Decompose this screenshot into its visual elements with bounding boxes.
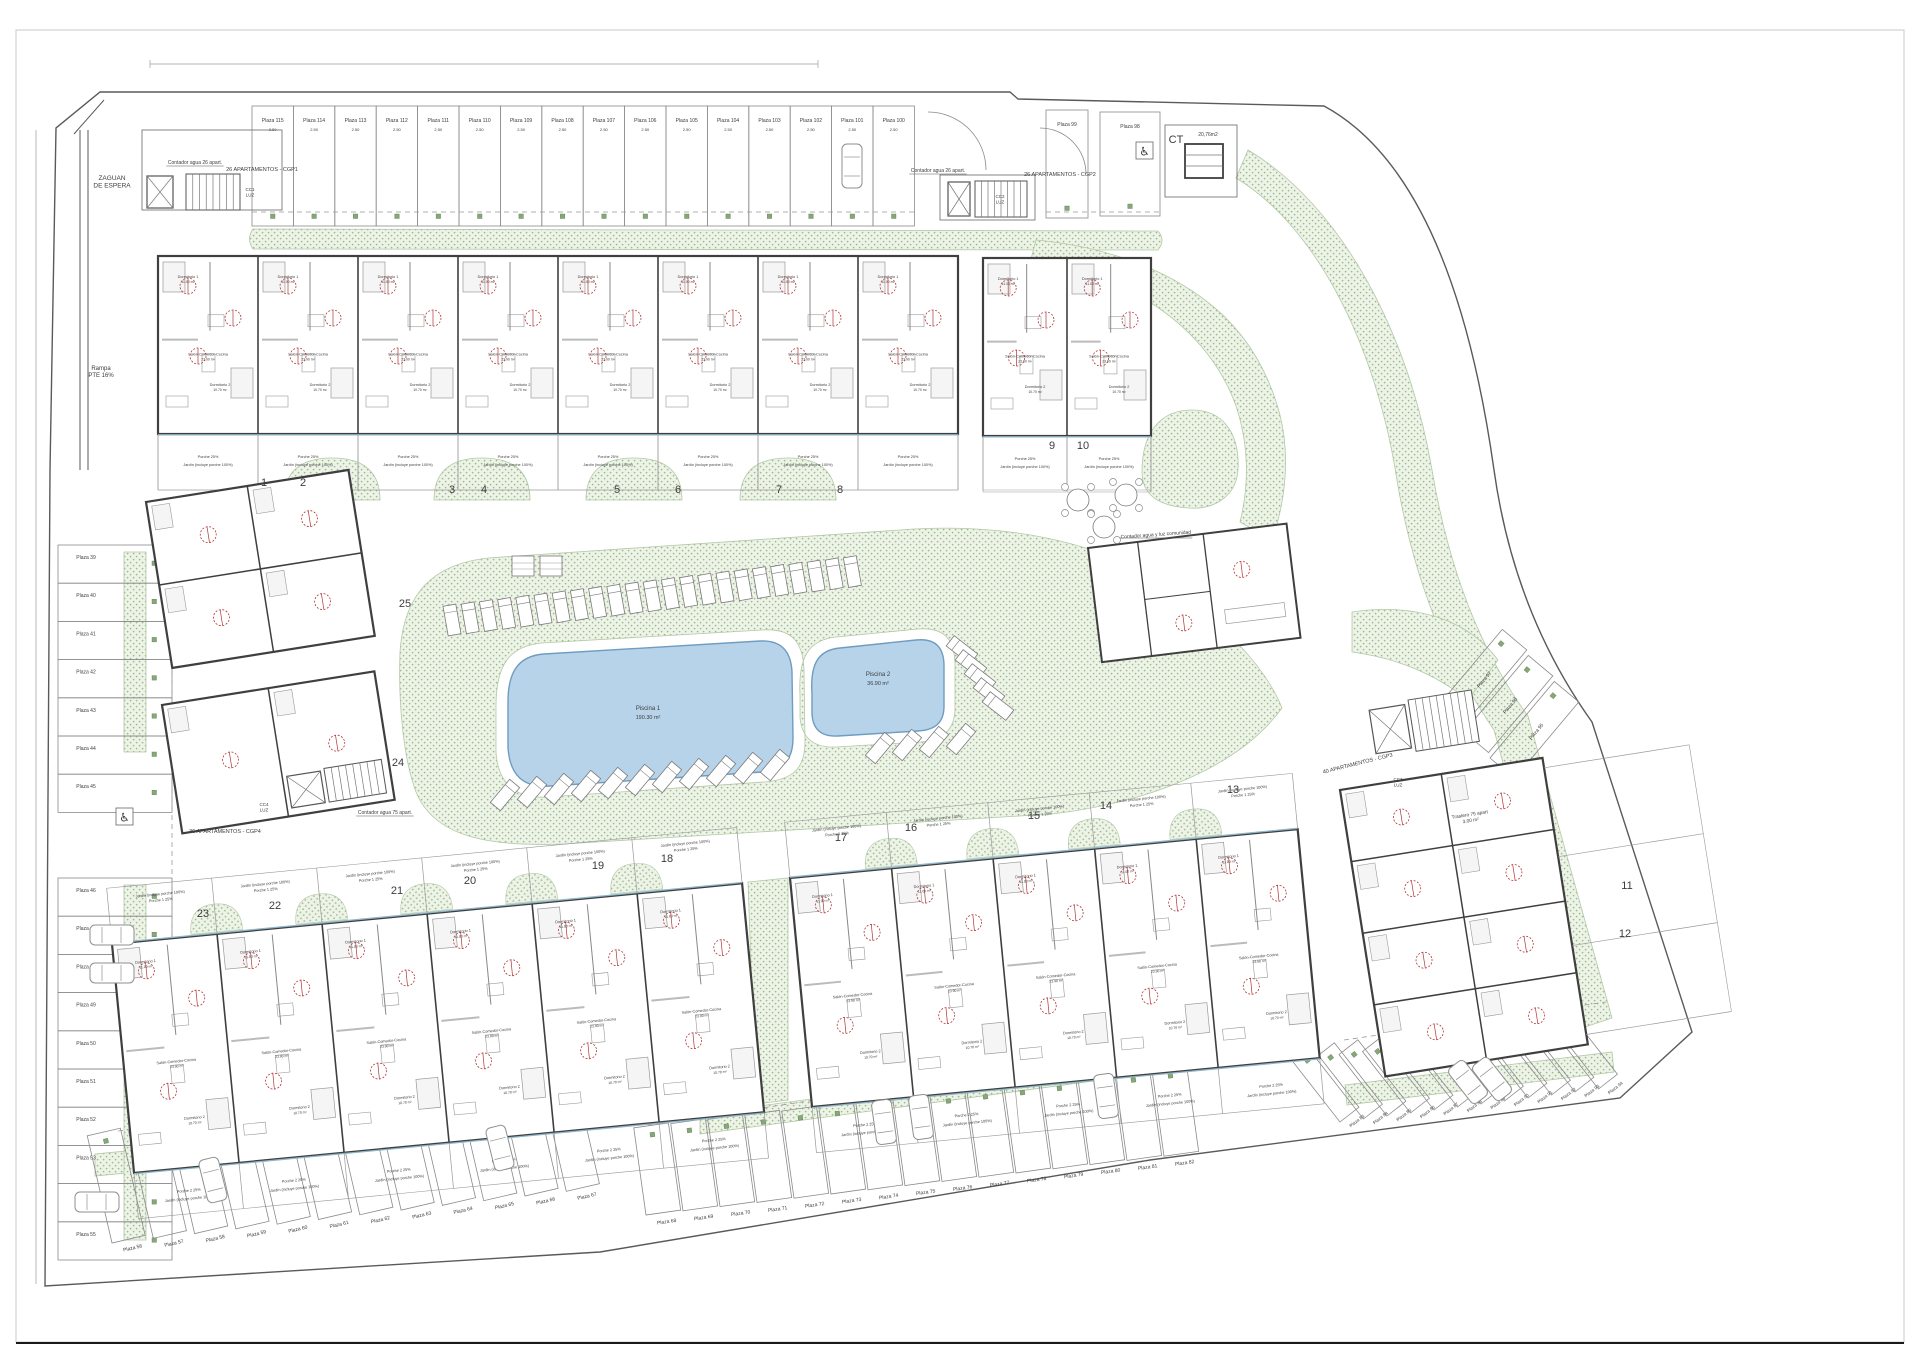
stall-marker — [983, 1094, 988, 1099]
room-label: Dormitorio 1 — [778, 275, 799, 279]
annotation-cc1: CC1LUZ — [245, 187, 254, 198]
parking-stall-label: Plaza 81 — [1138, 1163, 1158, 1172]
bed-furniture — [1481, 990, 1503, 1017]
room-area: 23.90 m² — [601, 358, 615, 362]
green-area — [250, 229, 1163, 250]
parking-stall-label: Plaza 59 — [247, 1229, 268, 1239]
building-west-upper — [146, 470, 375, 668]
porche-label: Porche 25% — [798, 455, 819, 459]
porche-label: Porche 1 25% — [674, 846, 699, 852]
pool-2 — [812, 640, 944, 736]
bed-furniture — [931, 368, 953, 398]
room-area: 10.70 m² — [613, 388, 627, 392]
room-label: Dormitorio 2 — [710, 383, 731, 387]
bed-furniture — [831, 368, 853, 398]
room-area: 11.00 m² — [481, 280, 495, 284]
parking-stall — [459, 106, 500, 226]
stall-marker — [353, 214, 358, 219]
plot-number: 10 — [1077, 440, 1089, 452]
garden-label: Jardín (incluye porche 100%) — [883, 463, 933, 467]
parking-stall-label: Plaza 91 — [1536, 1089, 1553, 1104]
garden-label: Jardín (incluye porche 100%) — [1000, 465, 1050, 469]
boundary-chamfer-inner — [74, 100, 104, 134]
parking-stall-label: Plaza 42 — [76, 670, 96, 676]
room-area: 10.70 m² — [513, 388, 527, 392]
stall-marker — [1375, 1048, 1381, 1054]
parking-stall-label: Plaza 72 — [805, 1201, 825, 1210]
patio-chair — [1062, 484, 1069, 491]
porche-label: Porche 25% — [198, 455, 219, 459]
stall-dimension: 2.50 — [476, 127, 485, 132]
parking-stall — [335, 106, 376, 226]
porche-label: Porche 1 25% — [464, 867, 489, 873]
plot-number: 5 — [614, 484, 620, 496]
parking-stall — [1152, 1064, 1199, 1156]
parking-stall-label: Plaza 51 — [76, 1079, 96, 1085]
east-stair-core — [1368, 690, 1479, 758]
bed-furniture — [1185, 1003, 1210, 1035]
stall-dimension: 2.50 — [393, 127, 402, 132]
parking-stall-label: Plaza 73 — [842, 1197, 862, 1206]
plot-number: 4 — [481, 484, 487, 496]
annotation-rampa: RampaPTE 16% — [88, 366, 114, 379]
plot-number: 13 — [1227, 784, 1239, 796]
stall-marker — [850, 214, 855, 219]
room-area: 11.00 m² — [181, 280, 195, 284]
stairs — [1408, 690, 1479, 751]
parking-stall-label: Plaza 52 — [76, 1117, 96, 1123]
plot-number: 21 — [391, 885, 403, 897]
parking-stall-label: Plaza 68 — [657, 1218, 677, 1227]
garden-front-line — [1689, 745, 1731, 1012]
stall-marker — [685, 214, 690, 219]
garden-label: Jardín (incluye porche 100%) — [583, 463, 633, 467]
car-body — [90, 925, 134, 945]
apartment-building — [790, 829, 1320, 1107]
parking-stall — [625, 106, 666, 226]
room-label: Salón-Comedor-Cocina — [788, 353, 829, 357]
car-body — [1093, 1073, 1119, 1119]
pool-2-area: 36.90 m² — [867, 681, 889, 687]
room-area: 10.70 m² — [713, 388, 727, 392]
parked-car — [75, 1192, 119, 1212]
room-label: Salón-Comedor-Cocina — [588, 353, 629, 357]
bed-furniture — [1368, 935, 1390, 962]
community-building — [1088, 524, 1301, 663]
parking-stall-label: Plaza 60 — [288, 1225, 309, 1235]
porche-label: Porche 2 25% — [1259, 1083, 1284, 1089]
room-area: 10.70 m² — [913, 388, 927, 392]
plot-number: 17 — [835, 832, 847, 844]
elevator — [287, 771, 326, 808]
bed-furniture — [531, 368, 553, 398]
room-label: Dormitorio 2 — [310, 383, 331, 387]
stall-marker — [1020, 1090, 1025, 1095]
annotation-contador26a: Contador agua 26 apart. — [168, 160, 222, 166]
plot-number: 24 — [392, 757, 404, 769]
garden-label: Jardín (incluye porche 100%) — [683, 463, 733, 467]
parking-stall-label: Plaza 43 — [76, 708, 96, 714]
elevator — [147, 176, 173, 208]
room-label: Dormitorio 1 — [998, 277, 1019, 281]
porche-label: Porche 25% — [398, 455, 419, 459]
room-label: Dormitorio 2 — [1025, 385, 1046, 389]
stall-marker — [650, 1132, 655, 1137]
patio-chair — [1136, 505, 1143, 512]
entry-path-arc — [1040, 128, 1086, 174]
parking-stall-label: Plaza 90 — [1513, 1092, 1530, 1107]
room-label: Dormitorio 1 — [278, 275, 299, 279]
garden-label: Jardín (incluye porche 100%) — [783, 463, 833, 467]
garden-label: Jardín (incluye porche 100%) — [283, 463, 333, 467]
parking-stall-group: Plaza 76 — [930, 1089, 979, 1194]
room-area: 11.00 m² — [681, 280, 695, 284]
bed-furniture — [266, 570, 288, 597]
garden-label: Jardín (incluye porche 100%) — [183, 463, 233, 467]
parking-stall-label: Plaza 50 — [76, 1041, 96, 1047]
annotation-zaguan: ZAGUANDE ESPERA — [93, 175, 131, 190]
parking-stall — [418, 106, 459, 226]
garden-divider — [1558, 834, 1703, 857]
plot-number: 20 — [464, 875, 476, 887]
stall-marker — [1550, 693, 1556, 699]
garden-divider — [1218, 1068, 1222, 1114]
parking-stall-label: Plaza 114 — [303, 118, 325, 124]
plot-number: 14 — [1100, 800, 1112, 812]
parking-stall-label: Plaza 74 — [879, 1193, 899, 1202]
room-label: Dormitorio 1 — [878, 275, 899, 279]
stall-dimension: 2.50 — [807, 127, 816, 132]
garden-divider — [1572, 923, 1717, 946]
bed-furniture — [1346, 791, 1368, 818]
parking-stall — [749, 106, 790, 226]
garden-divider — [737, 828, 742, 884]
stall-marker — [152, 790, 157, 795]
parking-stall-label: Plaza 83 — [1348, 1113, 1365, 1128]
stall-marker — [724, 1124, 729, 1129]
garden-label: Jardín (incluye porche 100%) — [585, 1154, 635, 1163]
parking-stall — [500, 106, 541, 226]
porche-label: Porche 1 25% — [569, 856, 594, 862]
ct-transformer — [1185, 144, 1223, 178]
garden-divider — [1544, 745, 1689, 768]
parking-stall — [583, 106, 624, 226]
bed-furniture — [416, 1077, 441, 1109]
stall-dimension: 2.50 — [310, 127, 319, 132]
stall-marker — [1328, 1054, 1334, 1060]
parking-stall-label: Plaza 99 — [1057, 122, 1077, 128]
green-area — [1142, 410, 1238, 508]
parking-stall-label: Plaza 45 — [76, 784, 96, 790]
garden-label: Jardín (incluye porche 100%) — [690, 1144, 740, 1153]
stall-dimension: 2.50 — [641, 127, 650, 132]
annotation-ct: CT — [1169, 134, 1184, 146]
garden-divider — [1015, 1087, 1019, 1133]
patio-chair — [1136, 479, 1143, 486]
porche-label: Porche 25% — [498, 455, 519, 459]
parking-stall — [967, 1085, 1014, 1177]
parking-stall-label: Plaza 44 — [76, 746, 96, 752]
parking-stall-label: Plaza 100 — [883, 118, 905, 124]
bed-furniture — [274, 690, 296, 717]
bed-furniture — [1458, 847, 1480, 874]
room-area: 11.00 m² — [381, 280, 395, 284]
garden-label: Jardín (incluye porche 100%) — [483, 463, 533, 467]
building-north-a: Dormitorio 111.00 m²Salón-Comedor-Cocina… — [158, 256, 958, 490]
porche-label: Porche 1 25% — [254, 887, 279, 893]
room-area: 11.00 m² — [1086, 282, 1100, 286]
pool-1-label: Piscina 1 — [636, 706, 661, 712]
porche-label: Porche 2 25% — [1056, 1102, 1081, 1108]
plot-number: 9 — [1049, 440, 1055, 452]
room-label: Dormitorio 2 — [410, 383, 431, 387]
room-label: Dormitorio 1 — [478, 275, 499, 279]
room-area: 11.00 m² — [581, 280, 595, 284]
parking-stall-label: Plaza 78 — [1027, 1176, 1047, 1185]
room-area: 23.90 m² — [401, 358, 415, 362]
room-label: Salón-Comedor-Cocina — [388, 353, 429, 357]
plan-sheet: Plaza 1152.50Plaza 1142.50Plaza 1132.50P… — [0, 0, 1920, 1356]
porche-label: Porche 25% — [298, 455, 319, 459]
bed-furniture — [1447, 775, 1469, 802]
accessible-icon: ♿ — [1139, 145, 1150, 159]
bed-furniture — [231, 368, 253, 398]
parking-stall-label: Plaza 46 — [76, 888, 96, 894]
bed-furniture — [521, 1067, 546, 1099]
parking-stall — [1041, 1077, 1088, 1169]
stall-marker — [798, 1115, 803, 1120]
room-label: Salón-Comedor-Cocina — [188, 353, 229, 357]
patio-table — [1115, 484, 1137, 506]
parking-stall-label: Plaza 69 — [694, 1214, 714, 1223]
parking-stall-label: Plaza 92 — [1560, 1086, 1577, 1101]
patio-chair — [1062, 510, 1069, 517]
patio-table — [1093, 516, 1115, 538]
car-body — [842, 144, 862, 188]
bed-furniture — [1357, 863, 1379, 890]
parking-stall-label: Plaza 56 — [123, 1243, 144, 1253]
room-label: Salón-Comedor-Cocina — [488, 353, 529, 357]
room-area: 23.90 m² — [701, 358, 715, 362]
annotation-ct_area: 20,76m2 — [1198, 132, 1218, 138]
patio-chair — [1088, 511, 1095, 518]
room-label: Dormitorio 2 — [610, 383, 631, 387]
porche-label: Porche 25% — [1015, 457, 1036, 461]
bed-furniture — [731, 1047, 756, 1079]
pool-equipment-box — [540, 556, 562, 576]
stall-marker — [835, 1111, 840, 1116]
annotation-contador26b: Contador agua 26 apart. — [911, 168, 965, 174]
pool-1-area: 190.30 m² — [636, 715, 661, 721]
parking-stall — [376, 106, 417, 226]
porche-label: Porche 2 25% — [177, 1188, 202, 1194]
parking-stall-label: Plaza 93 — [1583, 1083, 1600, 1098]
stall-marker — [312, 214, 317, 219]
stall-dimension: 2.50 — [724, 127, 733, 132]
room-area: 11.00 m² — [881, 280, 895, 284]
stall-marker — [892, 214, 897, 219]
plot-number: 23 — [197, 908, 209, 920]
parking-stall-label: Plaza 63 — [412, 1210, 433, 1220]
garden-label: Jardín (incluye porche 100%) — [1084, 465, 1134, 469]
parking-stall-label: Plaza 107 — [593, 118, 615, 124]
garden-label: Jardín (incluye porche 100%) — [943, 1119, 993, 1128]
bed-furniture — [982, 1022, 1007, 1054]
room-label: Dormitorio 1 — [578, 275, 599, 279]
room-label: Salón-Comedor-Cocina — [888, 353, 929, 357]
porche-label: Porche 1 25% — [1130, 802, 1155, 808]
car-body — [90, 963, 134, 983]
stall-dimension: 2.50 — [269, 127, 278, 132]
bed-furniture — [631, 368, 653, 398]
room-label: Dormitorio 1 — [378, 275, 399, 279]
bed-furniture — [1380, 1006, 1402, 1033]
plot-number: 1 — [261, 477, 267, 489]
room-area: 23.90 m² — [1102, 360, 1116, 364]
parking-stall-label: Plaza 104 — [717, 118, 739, 124]
porche-label: Porche 25% — [1099, 457, 1120, 461]
entry-path-arc — [928, 112, 986, 170]
parking-stall-label: Plaza 71 — [768, 1205, 788, 1214]
accessible-icon: ♿ — [119, 811, 130, 825]
bed-furniture — [206, 1098, 231, 1130]
plot-number: 25 — [399, 598, 411, 610]
bed-furniture — [431, 368, 453, 398]
room-label: Dormitorio 2 — [910, 383, 931, 387]
site-plan-svg: Plaza 1152.50Plaza 1142.50Plaza 1132.50P… — [0, 0, 1920, 1356]
parking-stall-label: Plaza 40 — [76, 593, 96, 599]
plot-number: 7 — [776, 484, 782, 496]
room-label: Dormitorio 1 — [1082, 277, 1103, 281]
plot-number: 6 — [675, 484, 681, 496]
parking-stall-label: Plaza 86 — [1419, 1104, 1436, 1119]
room-label: Salón-Comedor-Cocina — [1005, 355, 1046, 359]
parking-stall-group: Plaza 69 — [671, 1119, 720, 1224]
porche-label: Porche 1 25% — [359, 877, 384, 883]
stall-marker — [1351, 1051, 1357, 1057]
plot-number: 2 — [300, 477, 306, 489]
annotation-cgp2: 26 APARTAMENTOS - CGP2 — [1024, 172, 1096, 178]
plot-number: 15 — [1028, 810, 1040, 822]
annotation-cgp1: 26 APARTAMENTOS - CGP1 — [226, 167, 298, 173]
parking-stall-label: Plaza 110 — [469, 118, 491, 124]
parking-stall-label: Plaza 101 — [841, 118, 863, 124]
stall-marker — [478, 214, 483, 219]
stall-marker — [152, 714, 157, 719]
porche-label: Porche 2 25% — [1158, 1092, 1183, 1098]
garden-label: Jardín (incluye porche 100%) — [1247, 1089, 1297, 1098]
annotation-cgp3: 40 APARTAMENTOS - CGP3 — [1322, 752, 1393, 775]
stall-marker — [1131, 1077, 1136, 1082]
patio-table-group — [1088, 511, 1121, 544]
parking-stall-label: Plaza 102 — [800, 118, 822, 124]
green-area — [124, 552, 146, 752]
parking-stall-label: Plaza 79 — [1064, 1172, 1084, 1181]
parking-stall-label: Plaza 105 — [676, 118, 698, 124]
stall-marker — [1065, 206, 1070, 211]
garden-label: Jardín (incluye porche 100%) — [383, 463, 433, 467]
parking-stall-group: Plaza 73 — [819, 1102, 868, 1207]
parking-stall-label: Plaza 103 — [758, 118, 780, 124]
parking-stall-label: Plaza 85 — [1395, 1107, 1412, 1122]
room-area: 23.90 m² — [901, 358, 915, 362]
parking-stall — [542, 106, 583, 226]
parking-stall — [252, 106, 293, 226]
parking-stall-group: Plaza 81 — [1115, 1068, 1164, 1173]
patio-table — [1067, 489, 1089, 511]
stall-marker — [560, 214, 565, 219]
porche-label: Porche 25% — [898, 455, 919, 459]
room-label: Dormitorio 2 — [210, 383, 231, 387]
stall-marker — [1057, 1086, 1062, 1091]
patio-chair — [1088, 484, 1095, 491]
stall-dimension: 2.50 — [848, 127, 857, 132]
garden-label: Jardín (incluye porche 100%) — [270, 1184, 320, 1193]
plot-number: 18 — [661, 853, 673, 865]
garden-divider — [344, 1153, 348, 1199]
stall-marker — [271, 214, 276, 219]
stall-dimension: 2.50 — [434, 127, 443, 132]
bed-furniture — [731, 368, 753, 398]
parking-stall — [707, 106, 748, 226]
bed-furniture — [168, 706, 190, 733]
parking-stall — [666, 106, 707, 226]
stall-marker — [687, 1128, 692, 1133]
stall-dimension: 2.50 — [352, 127, 361, 132]
room-label: Salón-Comedor-Cocina — [688, 353, 729, 357]
parking-stall-label: Plaza 66 — [536, 1196, 557, 1206]
garden-label: Jardín (incluye porche 100%) — [1044, 1109, 1094, 1118]
stall-marker — [152, 752, 157, 757]
parking-stall-label: Plaza 55 — [76, 1232, 96, 1238]
parking-stall-label: Plaza 94 — [1607, 1080, 1624, 1095]
parking-stall-label: Plaza 77 — [990, 1180, 1010, 1189]
parking-stall-label: Plaza 108 — [551, 118, 573, 124]
stairs — [186, 174, 240, 210]
bed-furniture — [1470, 919, 1492, 946]
parked-car — [842, 144, 862, 188]
parking-stall-label: Plaza 84 — [1372, 1110, 1389, 1125]
parking-stall-label: Plaza 39 — [76, 555, 96, 561]
porche-label: Porche 1 25% — [926, 821, 951, 827]
parking-stall-label: Plaza 61 — [329, 1220, 350, 1230]
stall-marker — [436, 214, 441, 219]
parking-stall-label: Plaza 113 — [345, 118, 367, 124]
room-label: Dormitorio 2 — [1109, 385, 1130, 389]
plot-number: 3 — [449, 484, 455, 496]
room-area: 10.70 m² — [1028, 390, 1042, 394]
stall-dimension: 2.50 — [890, 127, 899, 132]
parking-stall-label: Plaza 58 — [205, 1234, 226, 1244]
pool-equipment-box — [512, 556, 534, 576]
parking-stall — [293, 106, 334, 226]
plot-number: 11 — [1621, 880, 1632, 892]
parking-stall-label: Plaza 64 — [453, 1206, 474, 1216]
garden-label: Jardín (incluye porche 100%) — [375, 1174, 425, 1183]
room-area: 23.90 m² — [301, 358, 315, 362]
car-body — [75, 1192, 119, 1212]
parked-car — [90, 963, 134, 983]
parking-stall-label: Plaza 98 — [1120, 124, 1140, 130]
bed-furniture — [331, 368, 353, 398]
parking-stall-label: Plaza 106 — [634, 118, 656, 124]
room-area: 10.70 m² — [413, 388, 427, 392]
stall-marker — [103, 1138, 108, 1143]
garden-label: Jardín (incluye porche 100%) — [1146, 1099, 1196, 1108]
patio-table-group — [1110, 479, 1143, 512]
parking-stall-label: Plaza 87 — [1442, 1101, 1459, 1116]
parked-car — [1093, 1073, 1119, 1119]
